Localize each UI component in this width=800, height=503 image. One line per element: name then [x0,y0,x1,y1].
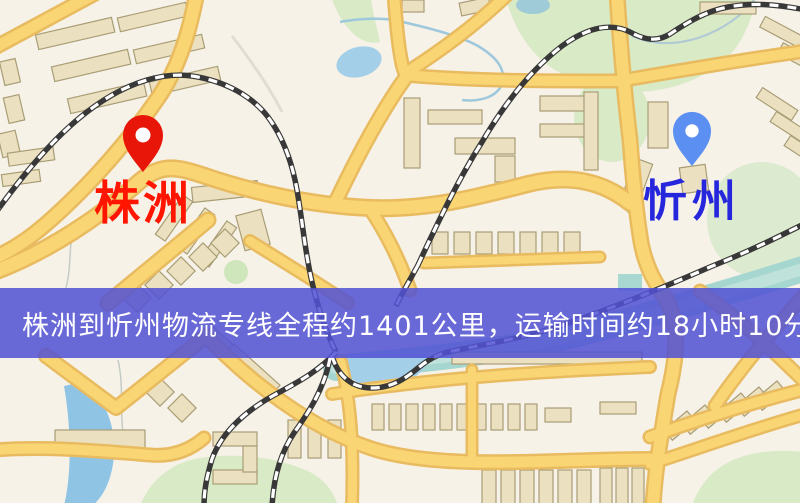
route-info-text: 株洲到忻州物流专线全程约1401公里，运输时间约18小时10分钟. [22,304,800,343]
map-screenshot: 株洲 忻州 株洲到忻州物流专线全程约1401公里，运输时间约18小时10分钟. [0,0,800,503]
destination-label: 忻州 [643,176,741,227]
destination-pin-hole [685,124,698,137]
map-canvas: 株洲 忻州 [0,0,800,503]
origin-label: 株洲 [94,176,192,230]
origin-pin-hole [136,128,151,143]
route-info-banner: 株洲到忻州物流专线全程约1401公里，运输时间约18小时10分钟. [0,288,800,358]
